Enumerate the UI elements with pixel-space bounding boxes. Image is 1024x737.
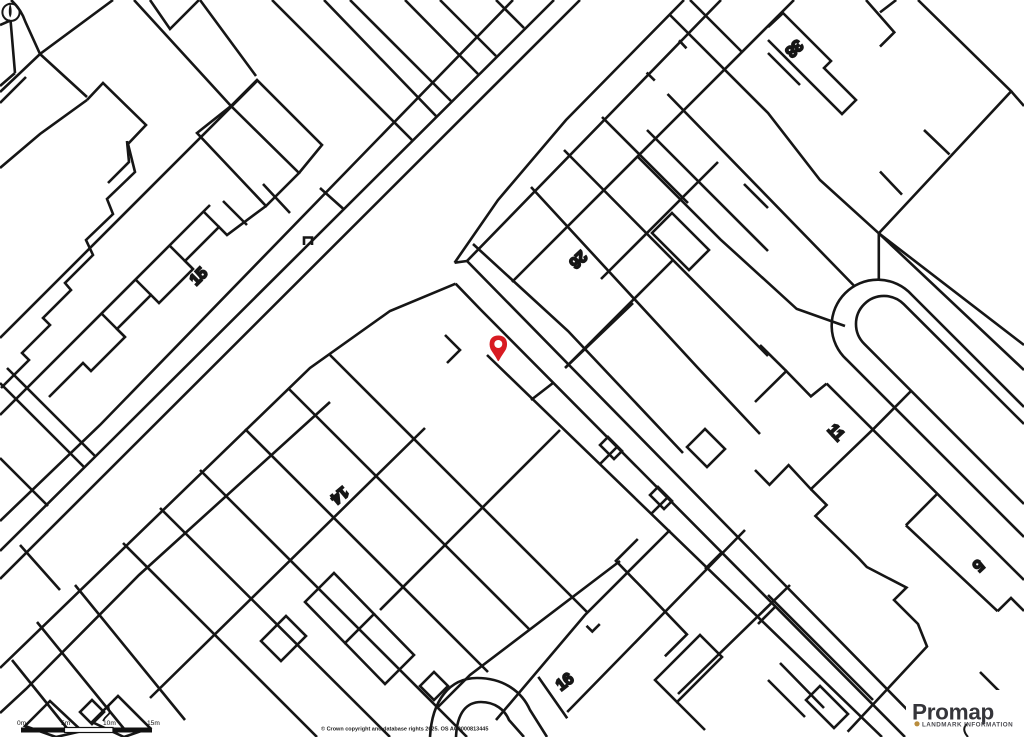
svg-text:26: 26 — [566, 247, 590, 271]
svg-text:© Crown copyright and database: © Crown copyright and database rights 20… — [321, 726, 488, 733]
svg-text:10m: 10m — [103, 720, 116, 727]
svg-text:11: 11 — [824, 421, 847, 444]
svg-text:16: 16 — [553, 670, 577, 694]
svg-text:LANDMARK INFORMATION: LANDMARK INFORMATION — [922, 722, 1013, 729]
svg-text:15m: 15m — [147, 720, 160, 727]
svg-text:5: 5 — [969, 556, 987, 574]
svg-text:5m: 5m — [61, 720, 71, 727]
svg-text:0m: 0m — [17, 720, 27, 727]
